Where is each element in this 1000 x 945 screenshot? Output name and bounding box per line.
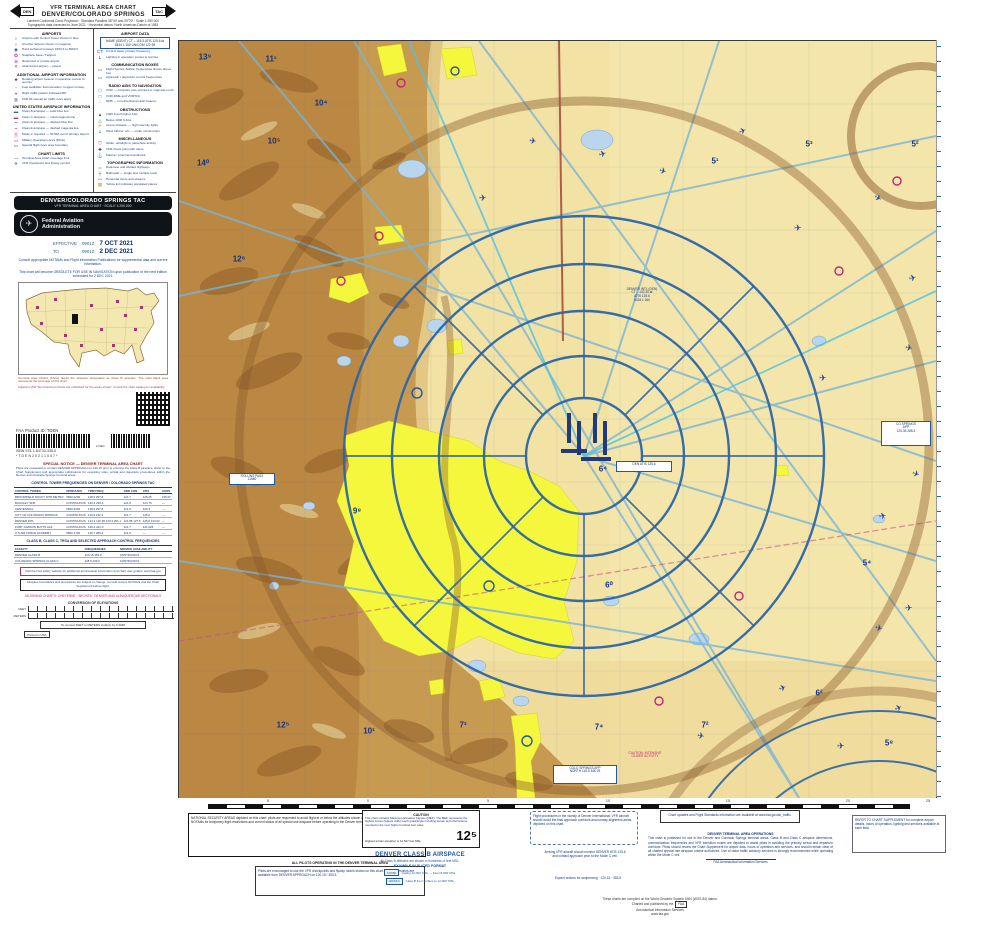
legend-symbol-icon: ○ [12, 37, 20, 42]
legend-symbol-icon: ✈ [12, 162, 20, 167]
legend-panel: DEN VFR TERMINAL AREA CHART DENVER/COLOR… [10, 4, 176, 940]
legend-item-label: Military Operations Area (MOA) [22, 139, 65, 143]
legend-item-label: VFR check point with name [106, 148, 144, 152]
class-b-subtitle: All Class B altitudes are shown in hundr… [350, 859, 490, 863]
legend-item: ▲1000 ft and higher AGL [96, 113, 174, 118]
legend-item-label: Group obstacle — high intensity lights [106, 124, 158, 128]
table-cell: — [142, 530, 161, 536]
class-b-example-2: 120/SFC Class B from surface to 12,000' … [350, 878, 490, 885]
legend-section: OBSTRUCTIONS ▲1000 ft and higher AGL△Bel… [96, 108, 174, 135]
table-cell: — [161, 530, 172, 536]
legend-item-label: Railroads — single and multiple track [106, 172, 157, 176]
scale-tick-label: 5 [487, 798, 489, 803]
to-label: TO [53, 249, 77, 254]
legend-item: ▭Approach / departure control frequencie… [96, 76, 174, 81]
table-cell: COLORADO SPRINGS CLASS C [14, 558, 84, 564]
faa-banner: ✈ Federal Aviation Administration [14, 212, 172, 236]
table-cell: U S AIR FORCE ACADEMY [14, 530, 65, 536]
faa-agency-line2: Administration [42, 224, 84, 230]
legend-item: ┼Railroads — single and multiple track [96, 172, 174, 177]
approach-freq-table-title: CLASS B, CLASS C, TRSA AND SELECTED APPR… [10, 539, 176, 543]
map-right-border [936, 40, 949, 797]
barcode-row: 2 DEC [16, 434, 170, 448]
legend-item-label: Class B airspace — solid blue line [22, 110, 69, 114]
legend-section: ADDITIONAL AIRPORT INFORMATION ★Rotating… [12, 73, 91, 102]
arrival-advice-text: Arriving VFR aircraft should monitor DEN… [543, 850, 627, 858]
control-tower-frequency-table: CONTROL TOWEROPERATESTWR FREQGND CONATIS… [14, 487, 172, 536]
updates-box: Chart updates and Flight Standards infor… [660, 810, 800, 823]
projection-fineprint: Lambert Conformal Conic Projection · Sta… [10, 19, 176, 29]
legend-item-label: Wind turbine; UC — under construction [106, 130, 160, 134]
barcode-primary [16, 434, 90, 448]
table-row: U S AIR FORCE ACADEMY0800-1700119.7 289.… [14, 530, 172, 536]
to-zulu: 0901Z [82, 249, 94, 254]
approach-frequency-table: FACILITYFREQUENCIESSERVICE AVAILABILITYD… [14, 545, 172, 564]
faa-url: www.faa.gov [545, 912, 775, 916]
legend-column-right: AIRPORT DATA NAME (IDENT) CT – 118.3 ATI… [93, 29, 176, 192]
map-graphic [179, 41, 936, 798]
highest-terrain-label: Highest terrain elevation is 12,527 feet… [365, 839, 435, 843]
vector-advice-text: Expect vectors for sequencing · 120.15 ·… [550, 876, 626, 880]
class-b-surface-desc: Class B from surface to 12,000' MSL [406, 879, 455, 883]
legend-item: ◍FAR 93 special air traffic rules apply [12, 98, 91, 103]
legend-symbol-icon: ▭ [96, 76, 104, 81]
legend-section: TOPOGRAPHIC INFORMATION ═Dual-lane and d… [96, 161, 174, 188]
meters-label: METERS [12, 615, 26, 618]
table-cell: 119.7 289.4 [87, 530, 123, 536]
conversion-of-elevations: CONVERSION OF ELEVATIONS FEET METERS To … [12, 601, 174, 638]
legend-symbol-icon: ┼ [96, 172, 104, 177]
class-b-title: DENVER CLASS B AIRSPACE [350, 852, 490, 858]
chart-series-title: VFR TERMINAL AREA CHART [34, 5, 152, 11]
legend-item-label: Hard-surfaced runways 1500 ft to 8069 ft [22, 48, 78, 52]
inset-caption-2: Adjacent VFR Terminal Area Charts are pu… [18, 386, 168, 390]
legend-item-label: Fuel available; field elevation; longest… [22, 86, 84, 90]
legend-item-label: Below 1000 ft AGL [106, 119, 132, 123]
class-b-altitude-desc: Ceiling 12,000' MSL — Floor 8,000' MSL [402, 871, 456, 875]
legend-item: ✪Seaplane base / Heliport [12, 54, 91, 59]
publisher-note: These charts are compiled on the World G… [545, 897, 775, 916]
legend-item-label: Yellow tint indicates populated places [106, 183, 157, 187]
product-id: FAA Product ID: TDEN [16, 428, 170, 433]
scale-bar [208, 804, 910, 809]
legend-item-label: Special flight rules area boundary [22, 144, 68, 148]
datamatrix-code [136, 392, 170, 426]
legend-symbol-icon: ▒ [12, 133, 20, 138]
notam-note: Consult appropriate NOTAMs and Flight In… [16, 258, 170, 267]
scale-tick-label: 20 [846, 798, 850, 803]
legend-section: COMMUNICATION BOXES ▭Flight Service Stat… [96, 63, 174, 81]
class-b-example-1: 120/80 Ceiling 12,000' MSL — Floor 8,000… [350, 869, 490, 876]
meters-ruler [28, 613, 174, 619]
legend-symbol-icon: ┅ [12, 127, 20, 132]
effective-date: 7 OCT 2021 [99, 240, 133, 247]
legend-symbol-icon: ⚓ [96, 154, 104, 159]
legend-section: AIRPORT DATA NAME (IDENT) CT – 118.3 ATI… [96, 32, 174, 60]
legend-item: LLighting in operation sunset to sunrise [96, 56, 174, 61]
effective-dates: EFFECTIVE 0901Z 7 OCT 2021 TO 0901Z 2 DE… [12, 240, 174, 255]
legend-item-label: Seaplane base / Heliport [22, 54, 56, 58]
scale-tick-label: 0 [367, 798, 369, 803]
info-box-1: Visit the FAA safety website for additio… [20, 567, 166, 576]
mef-example-value: 12⁵ [456, 828, 477, 843]
legend-item: ✚VFR check point with name [96, 148, 174, 153]
legend-item: ⬡VOR — compass rose oriented to magnetic… [96, 89, 174, 94]
airport-data-sample: NAME (IDENT) CT – 118.3 ATIS 125.6 ✪ 543… [100, 37, 170, 49]
legend-symbol-icon: ▲ [96, 113, 104, 118]
barcode-secondary [111, 434, 151, 448]
legend-item-label: Glider, ultralight or parachute activity [106, 142, 156, 146]
scale-tick-label: 5 [267, 798, 269, 803]
class-b-altitude-chip: 120/80 [384, 869, 398, 876]
legend-symbol-icon: ✕ [12, 65, 20, 70]
legend-item: ⚓Marina / prominent landmark [96, 154, 174, 159]
caution-body: This chart contains Maximum Elevation Fi… [365, 817, 477, 827]
legend-symbol-icon: ✚ [96, 148, 104, 153]
terminal-area-chart-map[interactable]: 13⁹11¹10⁴10⁵14⁰12⁶9⁸12⁵10¹7³7⁴7²6⁰6⁴5³5²… [178, 40, 937, 799]
legend-item-label: FAR 93 special air traffic rules apply [22, 98, 71, 102]
denver-coverage-marker [72, 314, 78, 324]
class-b-example-label: EXAMPLE IN SLICED FORMAT [350, 864, 490, 868]
chart-supplement-box: REFER TO CHART SUPPLEMENT for complete a… [852, 815, 946, 853]
feet-ruler [28, 606, 174, 612]
legend-item-label: VOR — compass rose oriented to magnetic … [106, 89, 174, 93]
chart-title-banner: DENVER/COLORADO SPRINGS TAC VFR TERMINAL… [14, 196, 172, 210]
fold-arrow-left-icon [10, 4, 20, 18]
class-b-surface-chip: 120/SFC [386, 878, 403, 885]
legend-item: ○Airports with Control Tower shown in bl… [12, 37, 91, 42]
table-cell: CONTINUOUS [119, 558, 172, 564]
legend-symbol-icon: ▦ [96, 183, 104, 188]
legend-symbol-icon: ▭ [12, 144, 20, 149]
legend-item: ▒Mode C required — 30 NM veil of primary… [12, 133, 91, 138]
faa-seal-icon: ✈ [20, 215, 38, 233]
legend-grid: AIRPORTS ○Airports with Control Tower sh… [10, 29, 176, 193]
legend-column-left: AIRPORTS ○Airports with Control Tower sh… [10, 29, 93, 192]
scale-tick-label: 10 [606, 798, 610, 803]
feet-label: FEET [12, 608, 26, 611]
chart-name-title: DENVER/COLORADO SPRINGS [34, 11, 152, 18]
class-b-legend: DENVER CLASS B AIRSPACE All Class B alti… [350, 852, 490, 885]
legend-item: ⌖Right traffic pattern indicated RP [12, 92, 91, 97]
legend-symbol-icon: ▭ [96, 68, 104, 73]
panel-header: DEN VFR TERMINAL AREA CHART DENVER/COLOR… [10, 4, 176, 18]
legend-item-label: Abandoned airport — paved [22, 65, 61, 69]
legend-item: CTControl tower primary frequency [96, 50, 174, 55]
header-tab-right: TAC [152, 7, 166, 16]
legend-item-label: Class C airspace — solid magenta line [22, 116, 75, 120]
legend-item-label: Terminal Area Chart coverage limit [22, 157, 69, 161]
terminal-operations-signature: FAA Aeronautical Information Services [706, 859, 776, 865]
legend-item-label: Dual-lane and divided highways [106, 166, 150, 170]
legend-item-label: Airports with Control Tower shown in blu… [22, 37, 79, 41]
legend-item-label: Mode C required — 30 NM veil of primary … [22, 133, 89, 137]
legend-symbol-icon: ⍋ [96, 130, 104, 135]
legend-section: AIRPORTS ○Airports with Control Tower sh… [12, 32, 91, 70]
legend-item-label: VOR-DME and VORTAC [106, 95, 140, 99]
legend-item-label: Rotating airport beacon in operation sun… [22, 78, 91, 85]
legend-symbol-icon: L [96, 56, 104, 61]
legend-item-label: Flight Service Station frequencies shown… [106, 68, 174, 75]
legend-section: CHART LIMITS —Terminal Area Chart covera… [12, 152, 91, 167]
legend-item-label: Class E airspace — dashed magenta line [22, 127, 79, 131]
legend-item: ▭Special flight rules area boundary [12, 144, 91, 149]
effective-label: EFFECTIVE [53, 241, 77, 246]
legend-item: ✈VFR checkpoint and flyway symbol [12, 162, 91, 167]
legend-item-label: NDB — non-directional radio beacon [106, 100, 156, 104]
conversion-note: To convert FEET to METERS multiply by 0.… [40, 621, 146, 629]
legend-item: ┅Class E airspace — dashed magenta line [12, 127, 91, 132]
chart-titles: VFR TERMINAL AREA CHART DENVER/COLORADO … [34, 5, 152, 18]
legend-item-label: Right traffic pattern indicated RP [22, 92, 66, 96]
legend-item-label: Perennial rivers and streams [106, 178, 145, 182]
faa-agency-name: Federal Aviation Administration [42, 218, 84, 230]
mef-caution-box: CAUTION This chart contains Maximum Elev… [362, 810, 480, 848]
table-cell: 121.6 [123, 530, 142, 536]
legend-item-label: VFR checkpoint and flyway symbol [22, 162, 70, 166]
table-cell: 118.5 239.0 [84, 558, 119, 564]
legend-section: MISCELLANEOUS ⛉Glider, ultralight or par… [96, 137, 174, 158]
scale-tick-label: 15 [726, 798, 730, 803]
scale-tick-label: 25 [926, 798, 930, 803]
legend-symbol-icon: ▬ [12, 110, 20, 115]
legend-item: ⍋Wind turbine; UC — under construction [96, 130, 174, 135]
table-row: COLORADO SPRINGS CLASS C118.5 239.0CONTI… [14, 558, 172, 564]
legend-item-label: Restricted or private airport [22, 60, 59, 64]
legend-item: ◌NDB — non-directional radio beacon [96, 100, 174, 105]
conversion-title: CONVERSION OF ELEVATIONS [12, 601, 174, 605]
product-code-text: * T D E N 2 0 2 1 1 0 0 7 * [16, 454, 170, 458]
faa-agency-line1: Federal Aviation [42, 218, 84, 224]
banner-subtitle: VFR TERMINAL AREA CHART · SCALE 1:250,00… [18, 204, 168, 208]
freq-table-title: CONTROL TOWER FREQUENCIES ON DENVER / CO… [10, 481, 176, 485]
legend-symbol-icon: ✪ [12, 54, 20, 59]
chart-sheet: DEN VFR TERMINAL AREA CHART DENVER/COLOR… [0, 0, 1000, 945]
legend-item-label: Control tower primary frequency [106, 50, 150, 54]
table-cell: 0800-1700 [65, 530, 87, 536]
legend-symbol-icon: ★ [12, 78, 20, 83]
header-tab-left: DEN [20, 7, 34, 16]
legend-item-label: Class D airspace — dashed blue line [22, 121, 73, 125]
isbn-text: ISBN 978-1-64733-335-0 [16, 449, 170, 453]
legend-item-label: 1000 ft and higher AGL [106, 113, 138, 117]
legend-symbol-icon: ⌖ [12, 92, 20, 97]
latitude-ticks [937, 40, 941, 797]
us-map-inset-graphic [20, 284, 166, 372]
legend-item-label: Approach / departure control frequencies [106, 76, 162, 80]
legend-section: RADIO AIDS TO NAVIGATION ⬡VOR — compass … [96, 84, 174, 105]
legend-item: ✕Abandoned airport — paved [12, 65, 91, 70]
fold-arrow-right-icon [166, 4, 176, 18]
info-box-2: Airspace boundaries and procedures are s… [20, 579, 166, 592]
flight-procedures-box: Flight procedures in the vicinity of Den… [530, 811, 638, 845]
legend-symbol-icon: ⬡ [96, 89, 104, 94]
legend-symbol-icon: ◌ [96, 100, 104, 105]
edition-tag: 2 DEC [96, 444, 105, 448]
printed-in-usa: Printed in USA [24, 631, 50, 638]
inset-caption-1: Terminal Area Charts (TACs) depict the a… [18, 377, 168, 385]
legend-item-label: Lighting in operation sunset to sunrise [106, 56, 158, 60]
legend-symbol-icon: ◍ [12, 98, 20, 103]
legend-item: ▦Yellow tint indicates populated places [96, 183, 174, 188]
legend-item: ▭Flight Service Station frequencies show… [96, 68, 174, 75]
effective-zulu: 0901Z [82, 241, 94, 246]
us-coverage-inset [18, 282, 168, 375]
legend-symbol-icon: CT [96, 50, 104, 55]
obsolete-note: This chart will become OBSOLETE FOR USE … [16, 270, 170, 279]
legend-item: ★Rotating airport beacon in operation su… [12, 78, 91, 85]
adjoining-charts-note: ADJOINING CHARTS: CHEYENNE · WICHITA · D… [16, 594, 170, 598]
terminal-operations-body: This chart is published for use in the D… [648, 836, 833, 857]
terminal-operations-paragraph: DENVER TERMINAL AREA OPERATIONS This cha… [648, 832, 833, 864]
legend-item-label: All other airports shown in magenta [22, 43, 71, 47]
special-notice-body: Pilots are requested to contact DENVER A… [16, 467, 170, 478]
legend-section: UNITED STATES AIRSPACE INFORMATION ▬Clas… [12, 105, 91, 149]
legend-item-label: Marina / prominent landmark [106, 154, 145, 158]
legend-section-title: AIRPORT DATA [96, 32, 174, 36]
charted-by-text: Charted and published by the [632, 902, 674, 906]
legend-item: ▬Class B airspace — solid blue line [12, 110, 91, 115]
obsolete-date: 2 DEC 2021 [99, 248, 133, 255]
fineprint-line2: Topographic data corrected to June 2021 … [10, 23, 176, 27]
faa-box-label: FAA [675, 901, 687, 907]
